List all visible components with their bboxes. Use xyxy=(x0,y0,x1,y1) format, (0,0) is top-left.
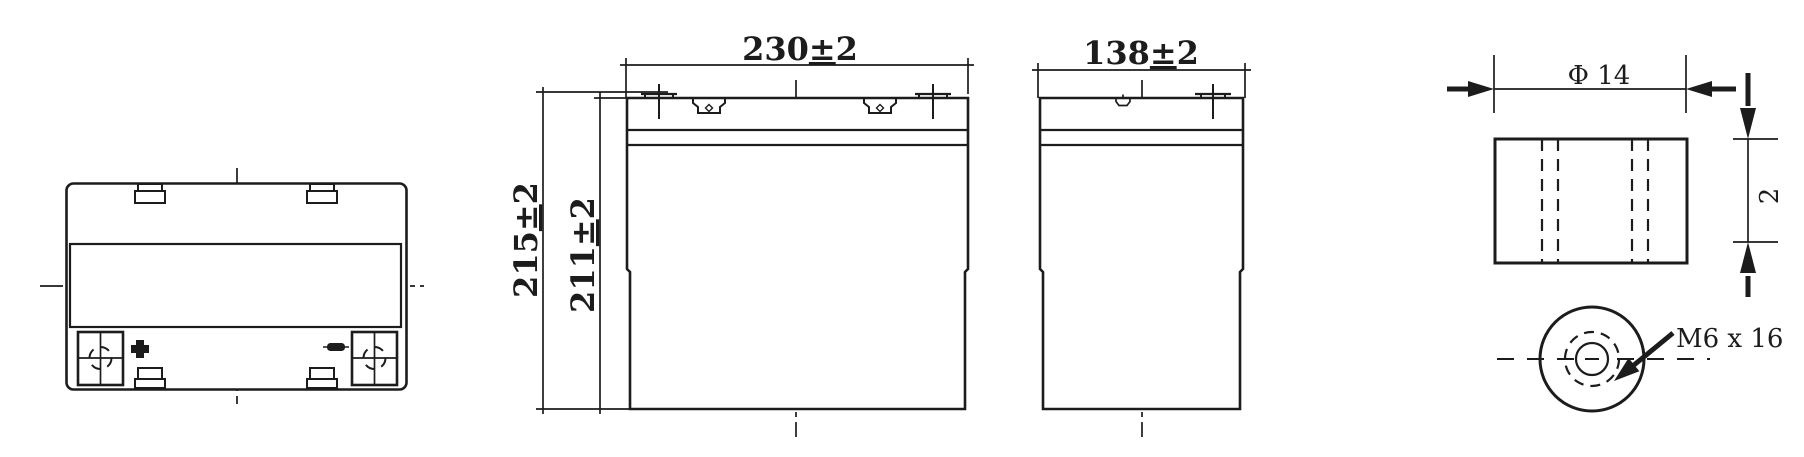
handle-clip-bottom-right xyxy=(307,368,337,388)
terminal-plate xyxy=(1495,139,1687,263)
arrowhead-left-icon xyxy=(1686,81,1712,97)
dim-container-height-label: 211±2 xyxy=(564,197,602,313)
terminal-bushing-top xyxy=(1497,307,1710,411)
thread-callout-label: M6 x 16 xyxy=(1676,324,1783,354)
terminal-detail-view: Φ 14 2 xyxy=(1447,55,1785,411)
dim-terminal-diameter-label: Φ 14 xyxy=(1568,61,1631,91)
arrowhead-up-icon xyxy=(1740,242,1756,273)
arrowhead-right-icon xyxy=(1468,81,1494,97)
handle-clip-top-left xyxy=(135,184,165,203)
battery-top-view xyxy=(40,168,424,404)
handle-clip-bottom-left xyxy=(135,368,165,388)
dim-container-height: 211±2 xyxy=(564,92,629,414)
engineering-drawing: 230±2 215±2 211±2 xyxy=(0,0,1804,457)
terminal-port-left xyxy=(78,332,123,385)
dim-terminal-diameter: Φ 14 xyxy=(1447,55,1736,113)
battery-front-view: 230±2 215±2 211±2 xyxy=(507,30,974,437)
dim-overall-height-label: 215±2 xyxy=(507,182,545,298)
dim-terminal-thickness: 2 xyxy=(1733,73,1785,297)
dim-depth-label: 138±2 xyxy=(1083,34,1199,72)
arrowhead-down-icon xyxy=(1740,108,1756,139)
terminal-port-right xyxy=(352,332,397,385)
thread-callout: M6 x 16 xyxy=(1614,324,1783,381)
battery-side-view: 138±2 xyxy=(1032,34,1251,437)
dim-width-label: 230±2 xyxy=(742,30,858,68)
handle-clip-top-right xyxy=(307,184,337,203)
dim-width: 230±2 xyxy=(620,30,974,97)
battery-dimension-drawing: 230±2 215±2 211±2 xyxy=(0,0,1804,457)
terminal-bushing-side xyxy=(1495,139,1687,263)
dim-terminal-thickness-label: 2 xyxy=(1755,188,1785,205)
